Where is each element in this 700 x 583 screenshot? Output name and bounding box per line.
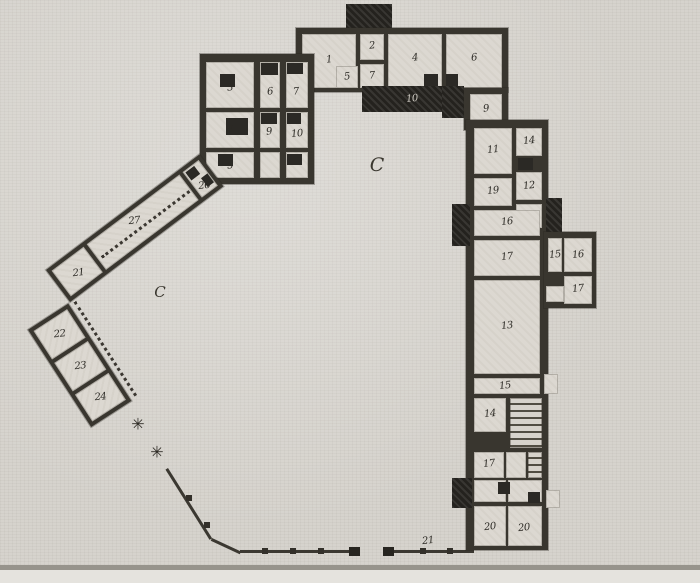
fence-wall [211, 538, 241, 554]
stairs [528, 452, 542, 478]
courtyard-label: C [154, 283, 165, 301]
fence-post [420, 548, 426, 554]
fence-post [318, 548, 324, 554]
room-label: 16 [501, 216, 514, 228]
stove-mark [287, 154, 302, 165]
room-label: 19 [487, 185, 500, 197]
room-label: 10 [406, 93, 419, 105]
room-label: 7 [369, 70, 376, 82]
stove-mark [261, 63, 278, 75]
room-label: 27 [128, 215, 141, 227]
porch-block [546, 198, 562, 234]
stove-mark [287, 113, 301, 124]
room-label: 6 [267, 86, 274, 98]
room-label: 3 [227, 82, 234, 94]
room-label: 9 [266, 126, 273, 138]
fence-post [204, 522, 210, 528]
room-label: 15 [549, 249, 562, 261]
fence-post [186, 495, 192, 501]
fence-post [290, 548, 296, 554]
room-label: 24 [94, 391, 107, 403]
room-label: 20 [484, 521, 497, 533]
stove-mark [498, 482, 510, 494]
porch-block [452, 204, 470, 246]
room-label: 21 [72, 267, 85, 279]
gate-post [349, 547, 360, 556]
stove-mark [518, 158, 533, 170]
room-label: 2 [369, 40, 376, 52]
fence-post [447, 548, 453, 554]
room-label: 10 [291, 128, 304, 140]
room-label: 12 [523, 180, 536, 192]
room-label: 15 [499, 380, 512, 392]
room-label: 13 [501, 320, 514, 332]
gallery-wing: 21 27 26 [46, 154, 223, 301]
room-label: 22 [53, 328, 66, 340]
room-label: 20 [518, 522, 531, 534]
room-label: 14 [484, 408, 497, 420]
fence-wall [165, 468, 212, 540]
room-small-d [546, 286, 564, 302]
room-label: 5 [344, 71, 351, 83]
room-label: 26 [198, 180, 211, 192]
room-label: 11 [487, 144, 500, 156]
stove-mark [528, 492, 540, 503]
gate-post-icon: ✳ [150, 443, 163, 462]
room-label: 6 [471, 52, 478, 64]
room-label: 1 [326, 54, 333, 66]
room-label: 9 [483, 103, 490, 115]
porch-block [442, 86, 464, 118]
room-label: 23 [74, 360, 87, 372]
stairs [510, 398, 542, 448]
gate-post-icon: ✳ [131, 415, 144, 434]
gate-post [383, 547, 394, 556]
room-label: 14 [523, 135, 536, 147]
room-label: 5 [227, 160, 234, 172]
fence-wall [392, 550, 474, 553]
room-label: 4 [412, 52, 419, 64]
southwest-wing: 22 23 24 [28, 296, 143, 427]
room-small-a [260, 152, 280, 178]
room-label: 7 [293, 86, 300, 98]
room-label: 8 [227, 124, 234, 136]
room-label: 17 [572, 283, 585, 295]
stove-mark [287, 63, 303, 74]
room-label: 16 [572, 249, 585, 261]
porch-block [452, 478, 472, 508]
fence-wall [240, 550, 352, 553]
room-label: 17 [501, 251, 514, 263]
room-label: 17 [483, 458, 496, 470]
room-small-i [546, 490, 560, 508]
room-small-f [506, 452, 526, 478]
fence-label: 21 [422, 535, 435, 547]
scan-edge-strip [0, 570, 700, 583]
fence-post [262, 548, 268, 554]
floor-plan-scan: 21 27 26 22 23 24 ✳ ✳ 21 [0, 0, 700, 583]
room-small-e [544, 374, 558, 394]
stove-mark [261, 113, 277, 124]
courtyard-label: C [370, 154, 385, 176]
